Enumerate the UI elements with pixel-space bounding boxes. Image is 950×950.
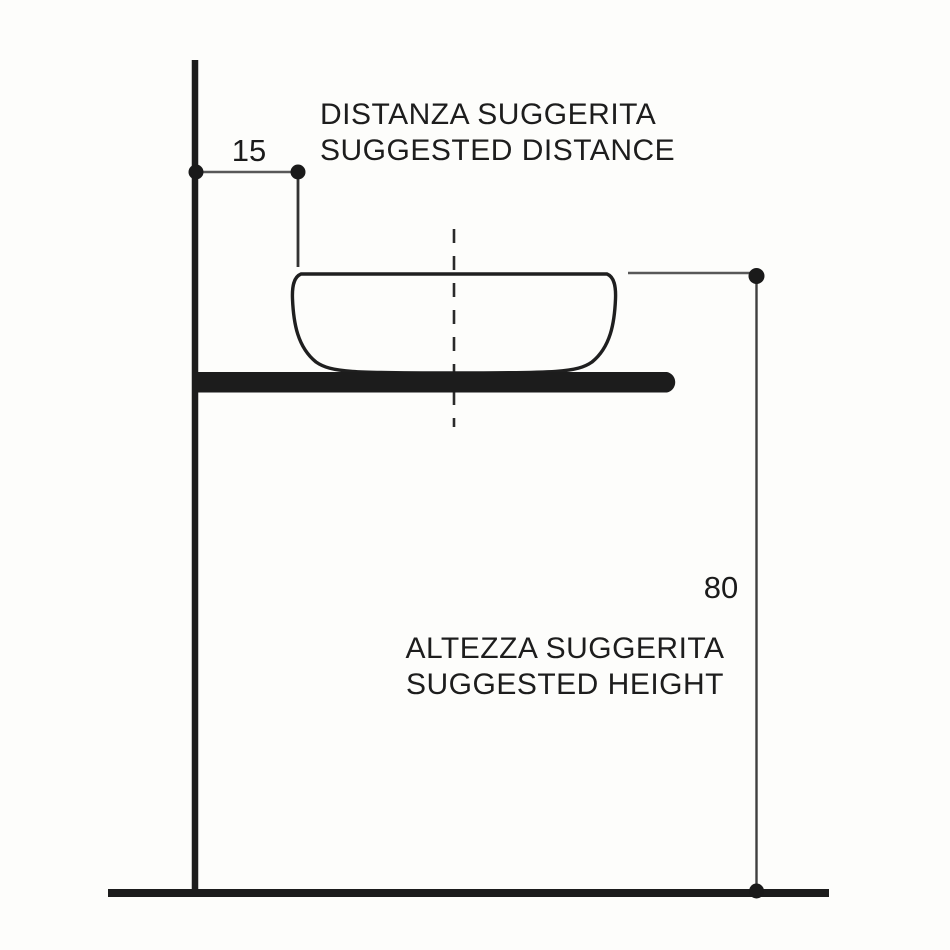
height-dimension-value: 80 [691,572,751,604]
distance-dot-wall [189,165,204,180]
distance-caption-italian: DISTANZA SUGGERITA [320,97,675,133]
installation-diagram: 15 DISTANZA SUGGERITA SUGGESTED DISTANCE… [0,0,950,950]
height-dot-top [749,268,765,284]
distance-caption: DISTANZA SUGGERITA SUGGESTED DISTANCE [320,97,675,169]
distance-caption-english: SUGGESTED DISTANCE [320,133,675,169]
distance-dimension-value: 15 [209,135,289,167]
height-caption-english: SUGGESTED HEIGHT [395,667,735,703]
height-caption: ALTEZZA SUGGERITA SUGGESTED HEIGHT [395,631,735,703]
height-dot-floor [749,884,764,899]
countertop-slab [193,372,675,393]
height-caption-italian: ALTEZZA SUGGERITA [395,631,735,667]
distance-dot-basin [291,165,306,180]
